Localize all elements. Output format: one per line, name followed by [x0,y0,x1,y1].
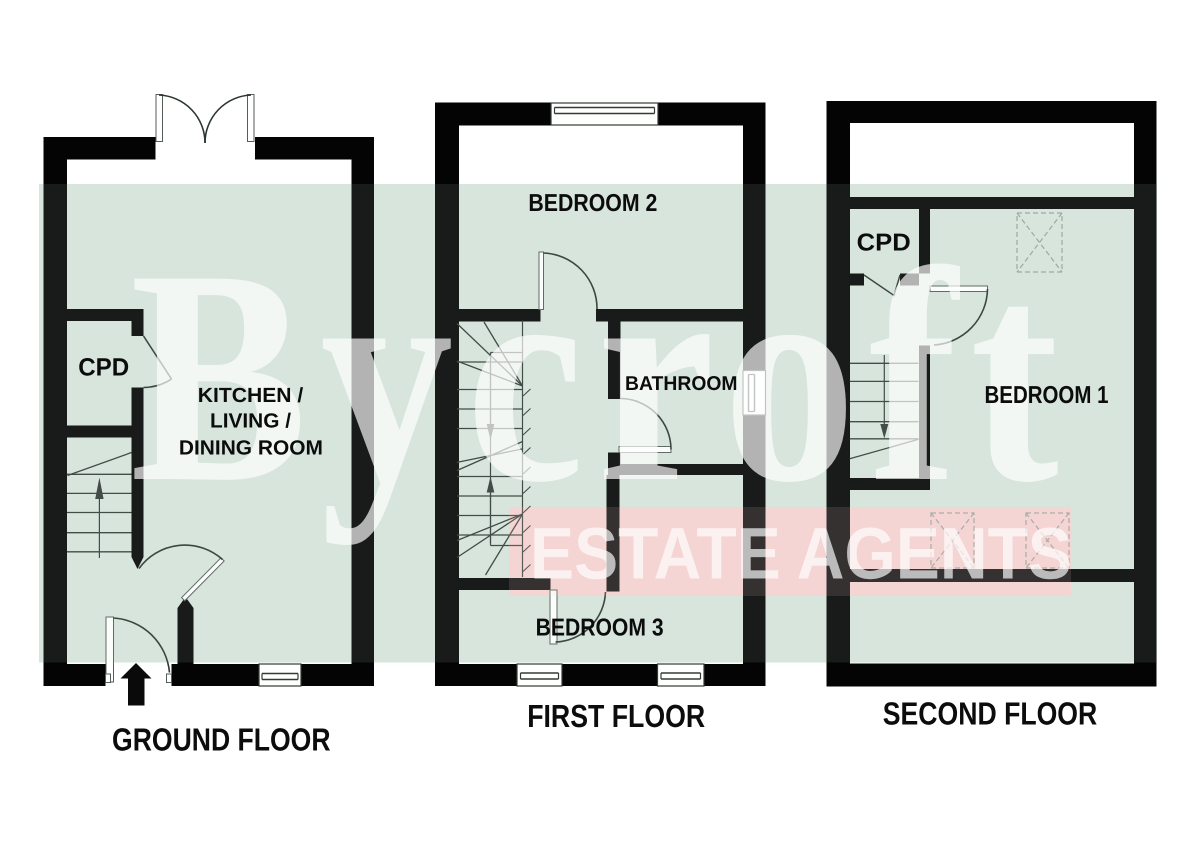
svg-text:KITCHEN /: KITCHEN / [198,384,304,407]
svg-text:ESTATE AGENTS: ESTATE AGENTS [530,514,1072,595]
svg-text:CPD: CPD [857,230,911,257]
svg-text:LIVING /: LIVING / [210,410,291,433]
svg-text:CPD: CPD [78,354,129,382]
svg-text:BEDROOM 1: BEDROOM 1 [985,382,1109,409]
svg-text:BATHROOM: BATHROOM [625,373,738,395]
svg-text:FIRST FLOOR: FIRST FLOOR [527,698,705,734]
svg-text:Bycroft: Bycroft [130,207,1072,546]
svg-text:SECOND FLOOR: SECOND FLOOR [883,696,1098,732]
svg-text:GROUND FLOOR: GROUND FLOOR [112,722,331,758]
svg-text:BEDROOM 2: BEDROOM 2 [528,190,657,217]
svg-text:DINING ROOM: DINING ROOM [179,436,323,459]
svg-text:BEDROOM 3: BEDROOM 3 [536,615,664,642]
